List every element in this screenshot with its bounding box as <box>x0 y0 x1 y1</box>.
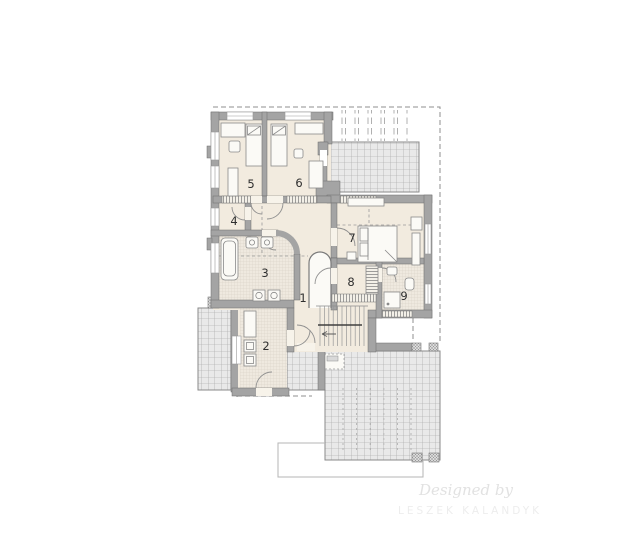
terrace-post <box>429 343 438 351</box>
room-label-6: 6 <box>295 176 302 190</box>
room-label-3: 3 <box>261 266 268 280</box>
watermark-author: LESZEK KALANDYK <box>398 505 542 517</box>
terrace-post <box>412 343 421 351</box>
shelf-symbol <box>295 123 323 134</box>
double-bed-symbol <box>358 226 397 262</box>
floor-plan-page: 1 2 3 4 5 6 7 8 9 Designed by LESZEK KAL… <box>0 0 638 556</box>
terrace-post <box>412 453 422 462</box>
room-label-9: 9 <box>400 289 407 303</box>
desk-symbol <box>221 123 245 137</box>
terrace-post <box>429 453 439 462</box>
room-label-1: 1 <box>299 291 306 305</box>
dresser-symbol <box>348 198 384 206</box>
bed-symbol <box>246 124 262 166</box>
roof-shingle-ticks <box>333 110 409 141</box>
nightstand-symbol <box>347 252 356 260</box>
chair-symbol <box>229 141 240 152</box>
wardrobe-symbol <box>412 233 420 265</box>
shower-symbol <box>384 292 400 308</box>
desk-symbol <box>309 161 323 188</box>
sink-symbol <box>387 267 397 275</box>
armchair-symbol <box>411 217 422 230</box>
wardrobe-shelves-symbol <box>366 266 378 294</box>
watermark-designed-by: Designed by <box>418 481 514 499</box>
room-label-5: 5 <box>247 177 254 191</box>
stair-arch-wall <box>309 252 331 308</box>
wardrobe-symbol <box>228 168 238 196</box>
bed-symbol <box>271 124 287 166</box>
room-label-8: 8 <box>347 275 354 289</box>
floor-plan-drawing: 1 2 3 4 5 6 7 8 9 Designed by LESZEK KAL… <box>0 0 638 556</box>
bathtub-symbol <box>221 238 238 280</box>
stool-symbol <box>294 149 303 158</box>
room-label-4: 4 <box>230 214 237 228</box>
upper-terrace <box>327 142 419 192</box>
room-label-7: 7 <box>348 231 355 245</box>
room-label-2: 2 <box>262 339 269 353</box>
